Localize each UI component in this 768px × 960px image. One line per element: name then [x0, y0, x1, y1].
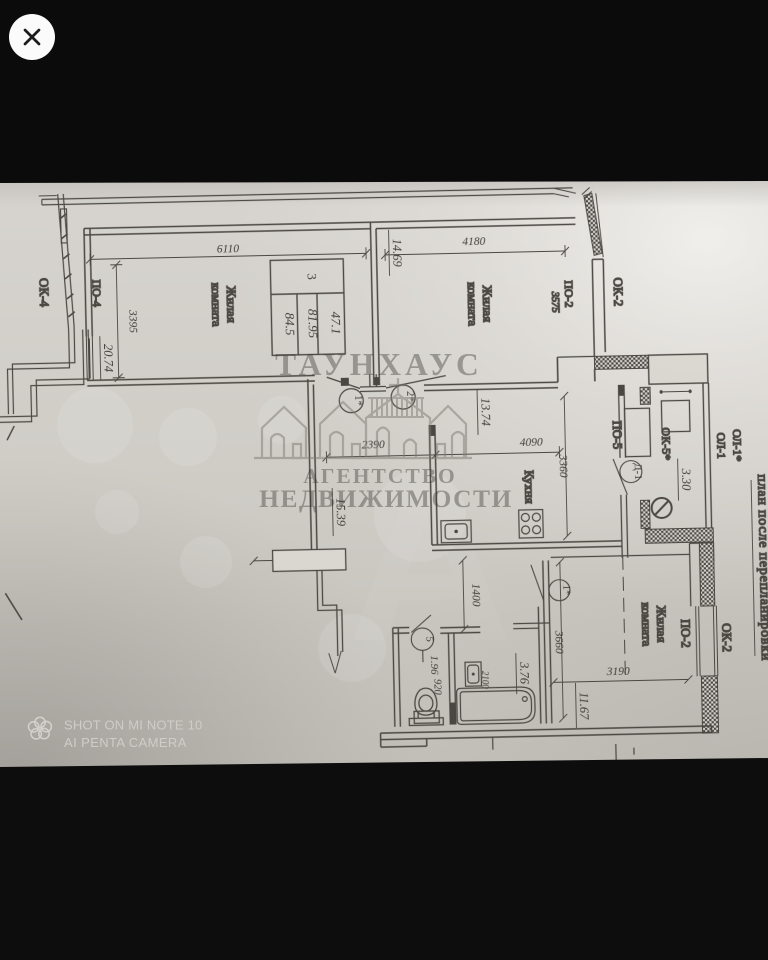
svg-text:НЕДВИЖИМОСТИ: НЕДВИЖИМОСТИ	[259, 484, 513, 513]
svg-text:6110: 6110	[217, 243, 240, 255]
svg-text:AI PENTA CAMERA: AI PENTA CAMERA	[64, 735, 187, 750]
svg-text:11.67: 11.67	[577, 692, 592, 720]
svg-text:ОК-5*: ОК-5*	[659, 427, 674, 460]
svg-text:ПО-2: ПО-2	[678, 619, 693, 648]
svg-text:4090: 4090	[520, 437, 544, 450]
svg-text:ПО-2: ПО-2	[562, 280, 577, 308]
svg-text:13.74: 13.74	[478, 398, 493, 426]
svg-text:3575: 3575	[549, 291, 560, 313]
svg-text:3.76: 3.76	[517, 661, 532, 685]
svg-text:ОЛ-1: ОЛ-1	[714, 432, 729, 459]
svg-text:Кухня: Кухня	[522, 470, 538, 504]
svg-text:ПО-4: ПО-4	[90, 279, 105, 307]
svg-text:ТАУНХАУС: ТАУНХАУС	[275, 347, 483, 382]
svg-text:1*: 1*	[560, 584, 572, 595]
svg-text:3360: 3360	[556, 453, 569, 478]
svg-text:14.69: 14.69	[390, 238, 405, 267]
svg-text:ОЛ-1*: ОЛ-1*	[730, 429, 745, 462]
svg-text:3190: 3190	[606, 666, 631, 679]
svg-text:47.1: 47.1	[328, 311, 343, 334]
svg-text:ОК-2: ОК-2	[719, 623, 735, 652]
svg-text:1.96: 1.96	[428, 655, 440, 675]
svg-text:84.5: 84.5	[282, 312, 298, 336]
svg-text:Жилаякомната: Жилаякомната	[209, 282, 240, 327]
svg-text:ПО-5: ПО-5	[610, 421, 625, 450]
svg-text:ОК-4: ОК-4	[37, 278, 53, 308]
svg-text:4180: 4180	[462, 236, 486, 249]
svg-text:3: 3	[304, 273, 319, 280]
svg-text:920: 920	[431, 679, 442, 696]
svg-text:1400: 1400	[469, 583, 482, 607]
svg-text:ОК-2: ОК-2	[611, 277, 627, 306]
svg-text:Д-1: Д-1	[632, 463, 644, 480]
svg-text:SHOT ON MI NOTE 10: SHOT ON MI NOTE 10	[64, 718, 202, 733]
svg-text:3395: 3395	[126, 309, 139, 334]
svg-text:20.74: 20.74	[101, 344, 116, 372]
svg-text:Жилаякомната: Жилаякомната	[465, 281, 496, 326]
svg-text:2100: 2100	[480, 671, 490, 690]
svg-text:Жилаякомната: Жилаякомната	[639, 602, 670, 647]
svg-text:5: 5	[423, 636, 435, 642]
svg-text:3660: 3660	[552, 630, 565, 655]
svg-text:81.95: 81.95	[305, 309, 321, 339]
svg-text:3.30: 3.30	[679, 467, 694, 491]
svg-text:1*: 1*	[352, 395, 364, 406]
